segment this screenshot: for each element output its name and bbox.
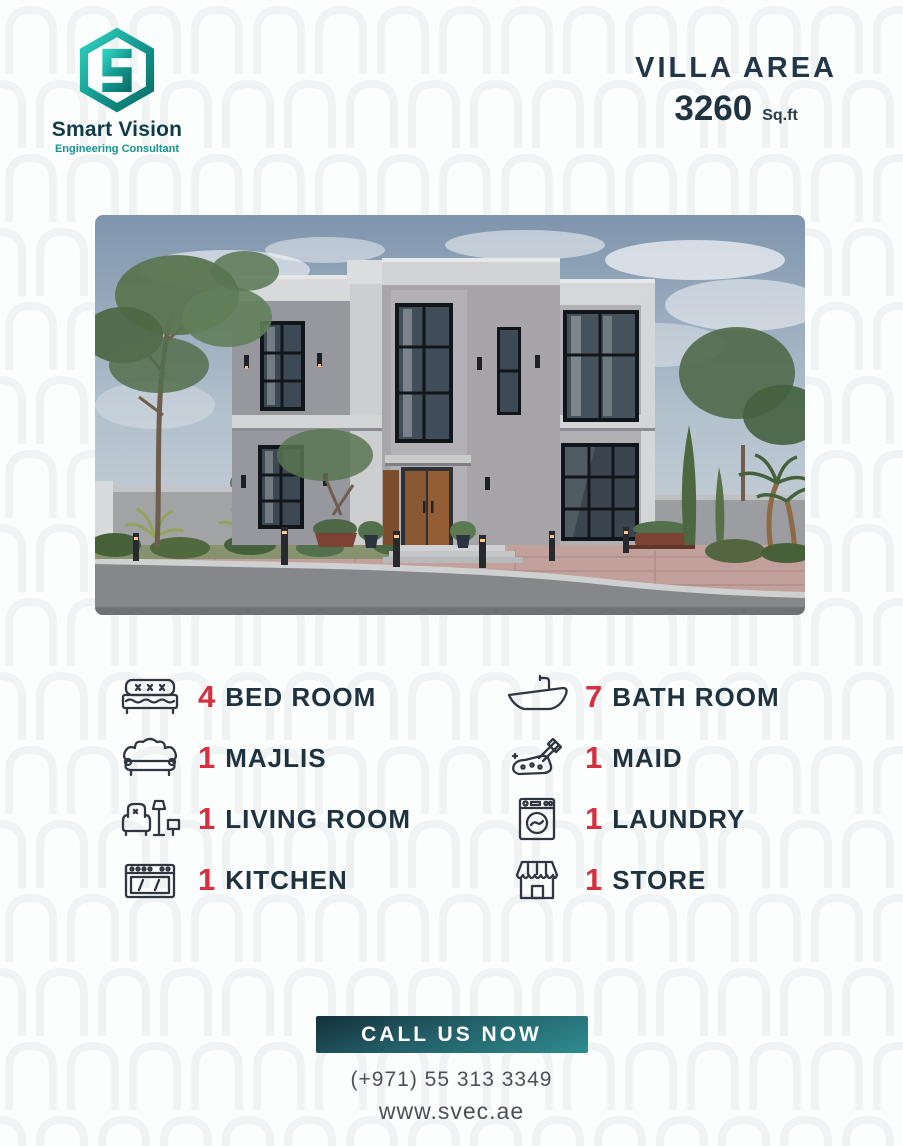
brand-logo-block: Smart Vision Engineering Consultant [42,26,192,155]
villa-photo [95,215,805,615]
bed-icon [118,673,182,721]
armchair-icon [118,795,182,843]
feature-count: 1 [198,862,215,898]
villa-area-value: 3260 [674,89,752,129]
feature-label: LIVING ROOM [225,804,411,835]
feature-laundry: 1 LAUNDRY [505,796,818,842]
feature-count: 4 [198,679,215,715]
stove-icon [118,856,182,904]
call-us-now-button[interactable]: CALL US NOW [316,1016,588,1053]
feature-count: 1 [585,801,602,837]
contact-block: (+971) 55 313 3349 www.svec.ae [0,1068,903,1125]
feature-count: 1 [198,801,215,837]
villa-building [232,258,655,545]
storefront-icon [505,856,569,904]
phone-number-link[interactable]: (+971) 55 313 3349 [0,1068,903,1092]
entrance-steps [383,545,523,563]
feature-majlis: 1 MAJLIS [118,735,505,781]
feature-bathroom: 7 BATH ROOM [505,674,818,720]
feature-bedroom: 4 BED ROOM [118,674,505,720]
feature-count: 1 [585,862,602,898]
feature-label: BATH ROOM [612,682,779,713]
brand-tagline: Engineering Consultant [42,143,192,155]
flyer-poster: Smart Vision Engineering Consultant VILL… [0,0,903,1146]
website-link[interactable]: www.svec.ae [0,1098,903,1125]
feature-store: 1 STORE [505,857,818,903]
smart-vision-logo-icon [71,26,163,114]
feature-list: 4 BED ROOM 7 BATH ROOM [118,674,818,903]
feature-kitchen: 1 KITCHEN [118,857,505,903]
villa-area-label: VILLA AREA [635,52,837,85]
feature-maid: 1 MAID [505,735,818,781]
feature-count: 7 [585,679,602,715]
villa-render-illustration [95,215,805,615]
villa-area-block: VILLA AREA 3260 Sq.ft [635,52,837,129]
feature-living-room: 1 LIVING ROOM [118,796,505,842]
feature-count: 1 [198,740,215,776]
feature-count: 1 [585,740,602,776]
feature-label: MAJLIS [225,743,326,774]
feature-label: BED ROOM [225,682,376,713]
feature-label: STORE [612,865,706,896]
villa-area-unit: Sq.ft [762,107,798,125]
bathtub-icon [505,673,569,721]
feature-label: KITCHEN [225,865,348,896]
feature-label: MAID [612,743,682,774]
sofa-icon [118,734,182,782]
brand-name: Smart Vision [42,118,192,142]
cleaning-icon [505,734,569,782]
washing-machine-icon [505,795,569,843]
feature-label: LAUNDRY [612,804,745,835]
